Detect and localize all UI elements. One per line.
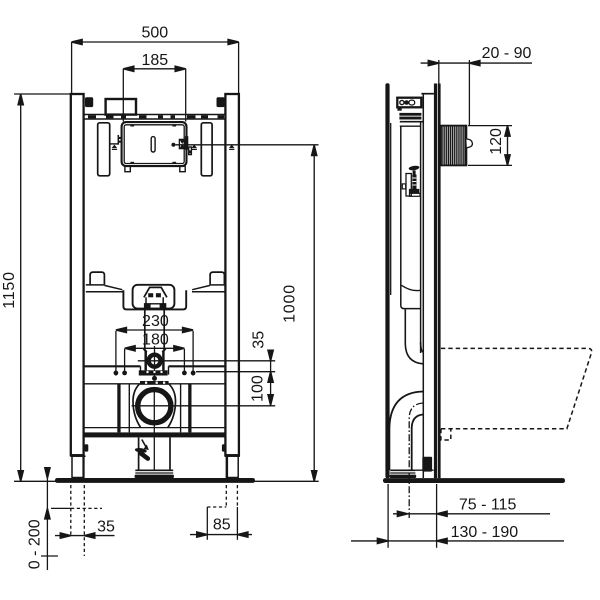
svg-text:35: 35 [251,331,268,349]
svg-text:0 - 200: 0 - 200 [27,519,44,569]
svg-text:230: 230 [142,313,169,330]
svg-text:500: 500 [141,25,168,42]
svg-text:20 - 90: 20 - 90 [482,45,532,62]
svg-text:130 - 190: 130 - 190 [451,524,519,541]
svg-text:180: 180 [142,332,169,349]
svg-text:85: 85 [213,517,231,534]
svg-text:185: 185 [141,52,168,69]
svg-text:35: 35 [97,518,115,535]
svg-text:1000: 1000 [282,284,299,323]
svg-text:1150: 1150 [1,271,18,309]
svg-text:100: 100 [250,375,267,402]
svg-text:75 - 115: 75 - 115 [459,497,517,514]
svg-text:120: 120 [488,128,505,155]
